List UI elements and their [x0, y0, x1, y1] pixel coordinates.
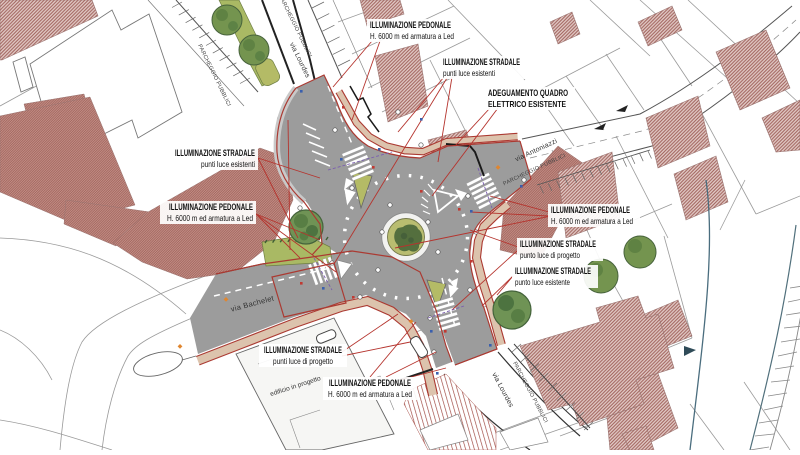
svg-text:ADEGUAMENTO QUADRO: ADEGUAMENTO QUADRO	[488, 88, 568, 98]
svg-text:ILLUMINAZIONE PEDONALE: ILLUMINAZIONE PEDONALE	[169, 202, 253, 212]
svg-text:ILLUMINAZIONE STRADALE: ILLUMINAZIONE STRADALE	[443, 57, 520, 67]
svg-text:punto luce esistente: punto luce esistente	[515, 277, 570, 287]
svg-text:H. 6000 m ed armatura a Led: H. 6000 m ed armatura a Led	[328, 389, 412, 399]
svg-text:punti luce esistenti: punti luce esistenti	[201, 159, 255, 169]
svg-text:H. 6000 m ed armatura a Led: H. 6000 m ed armatura a Led	[370, 31, 454, 41]
svg-text:ILLUMINAZIONE STRADALE: ILLUMINAZIONE STRADALE	[520, 239, 596, 249]
svg-text:ILLUMINAZIONE PEDONALE: ILLUMINAZIONE PEDONALE	[329, 378, 411, 388]
svg-text:ILLUMINAZIONE STRADALE: ILLUMINAZIONE STRADALE	[515, 266, 591, 276]
svg-text:H. 6000 m ed armatura a Led: H. 6000 m ed armatura a Led	[167, 213, 253, 223]
svg-text:ILLUMINAZIONE PEDONALE: ILLUMINAZIONE PEDONALE	[551, 205, 630, 215]
svg-text:H. 6000 m ed armatura a Led: H. 6000 m ed armatura a Led	[551, 216, 633, 226]
svg-text:ELETTRICO ESISTENTE: ELETTRICO ESISTENTE	[488, 99, 566, 109]
svg-text:punti luce di progetto: punti luce di progetto	[273, 356, 333, 366]
svg-text:ILLUMINAZIONE STRADALE: ILLUMINAZIONE STRADALE	[264, 345, 342, 355]
svg-text:ILLUMINAZIONE PEDONALE: ILLUMINAZIONE PEDONALE	[370, 20, 451, 30]
svg-text:punto luce di progetto: punto luce di progetto	[520, 250, 580, 260]
svg-text:ILLUMINAZIONE STRADALE: ILLUMINAZIONE STRADALE	[175, 148, 255, 158]
svg-text:punti luce esistenti: punti luce esistenti	[443, 68, 495, 78]
